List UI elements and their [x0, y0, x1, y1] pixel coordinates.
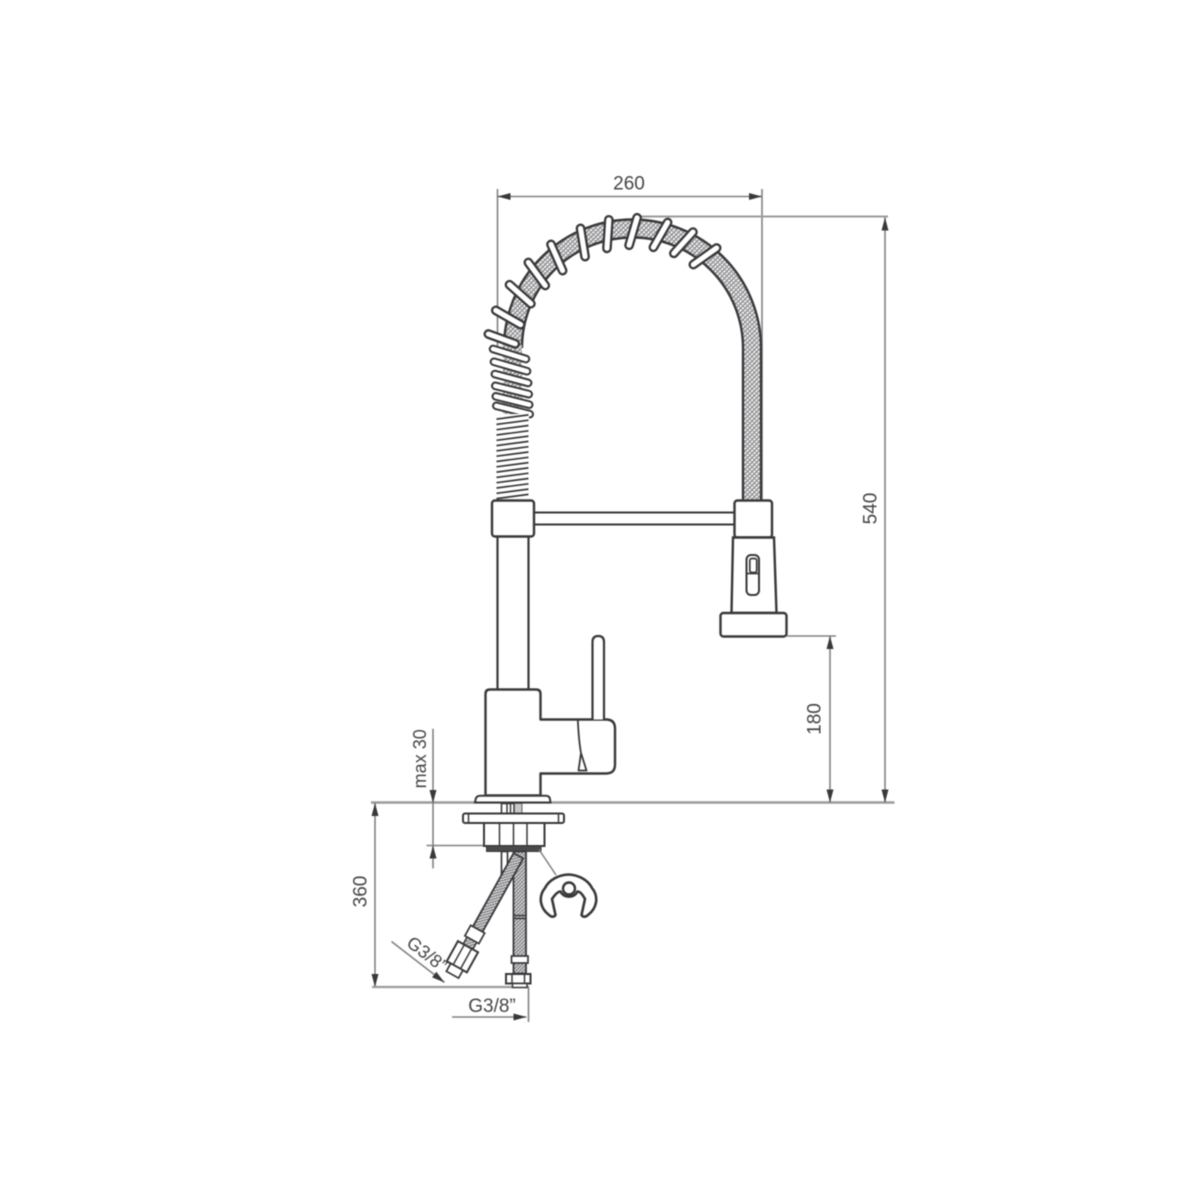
svg-text:max 30: max 30 — [410, 729, 430, 788]
svg-text:260: 260 — [613, 174, 645, 195]
svg-text:540: 540 — [861, 493, 882, 525]
svg-text:180: 180 — [805, 703, 826, 735]
svg-text:360: 360 — [351, 876, 372, 908]
svg-text:G3/8”: G3/8” — [468, 996, 516, 1017]
